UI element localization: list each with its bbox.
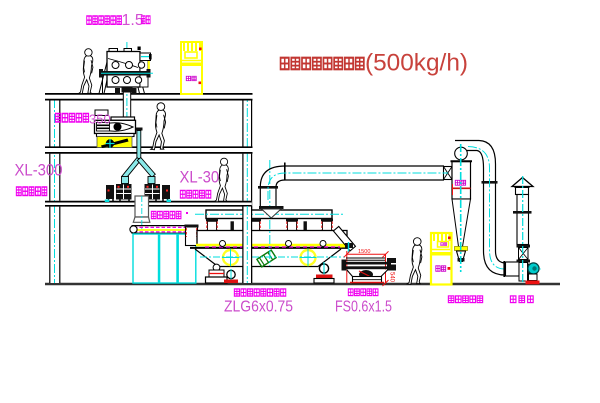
svg-text:1.5: 1.5 [122,12,144,29]
svg-text:350: 350 [89,112,111,127]
svg-text:XL-300: XL-300 [15,161,63,180]
svg-text:540: 540 [389,272,395,283]
svg-text:(500kg/h): (500kg/h) [365,50,468,77]
svg-text:1500: 1500 [358,249,370,255]
svg-text:ZLG6x0.75: ZLG6x0.75 [224,299,293,316]
svg-text:FS0.6x1.5: FS0.6x1.5 [335,299,392,316]
